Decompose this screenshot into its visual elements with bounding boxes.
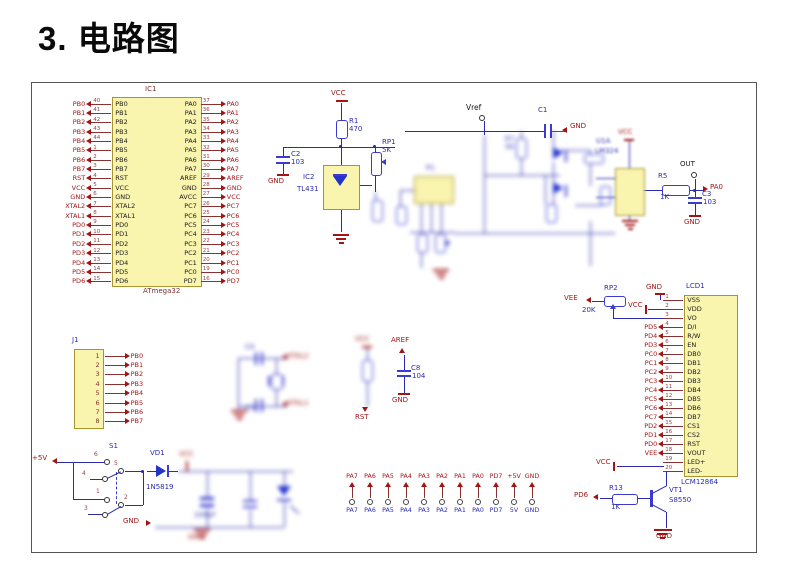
pin-number: 1 [665, 294, 669, 300]
pin-label: PA3 [418, 507, 430, 514]
ic1-pin-row: VCC 5 VCC GND 28 GND [58, 183, 254, 192]
pin-name: XTAL2 [111, 202, 156, 210]
pin-name: PA6 [156, 156, 201, 164]
vcc-label: VCC [596, 459, 611, 466]
ic1-pin-row: PD3 12 PD3 PC2 21 PC2 [58, 249, 254, 258]
net-label: PA6 [364, 473, 376, 482]
pin-line [105, 407, 125, 416]
net-label: PD2 [632, 422, 658, 430]
pin-name: PA7 [156, 165, 201, 173]
ground-symbol [625, 224, 635, 226]
pd6-net-label: PD6 [574, 492, 588, 499]
net-label: PA7 [226, 165, 254, 173]
wire [629, 141, 630, 168]
net-label: PD2 [58, 240, 86, 248]
pin-name: PC2 [156, 249, 201, 257]
pin-name: PB2 [111, 118, 156, 126]
pin-line [532, 487, 533, 498]
switch-pin-number: 5 [114, 461, 118, 467]
net-label: PD0 [632, 440, 658, 448]
pin-name: PC0 [156, 268, 201, 276]
pin-number: 35 [203, 117, 210, 123]
power-bar [624, 139, 634, 141]
pin-label: PD7 [490, 507, 503, 514]
pin-number: 24 [203, 219, 210, 225]
lcd-pin-row: 20 LED- [632, 466, 734, 475]
net-label: PB7 [58, 165, 86, 173]
ic1-pin-row: PD4 13 PD4 PC1 20 PC1 [58, 258, 254, 267]
j1-pin-row: 5 PB4 [76, 389, 156, 398]
pin-number: 11 [93, 238, 100, 244]
rp2-designator: RP2 [604, 285, 618, 292]
terminal [493, 499, 499, 505]
net-label: PD7 [226, 277, 254, 285]
terminal [475, 499, 481, 505]
pin-number: 8 [93, 210, 97, 216]
lcd-pin-row: PC1 8 DB1 [632, 358, 734, 367]
pin-name: PD3 [111, 249, 156, 257]
gnd-label: GND [570, 123, 586, 130]
net-label: PD3 [58, 249, 86, 257]
pin-number: 37 [203, 98, 210, 104]
ic1-pin-row: PD5 14 PD5 PC0 19 PC0 [58, 267, 254, 276]
net-label: PC6 [632, 404, 658, 412]
ic1-pin-row: PD6 15 PD6 PD7 16 PD7 [58, 277, 254, 286]
aref-net-label: AREF [391, 337, 409, 344]
pin-number: 10 [665, 375, 672, 381]
io-connector-column: PA5 PA5 [379, 473, 397, 514]
lcd-pin-row: PD0 17 RST [632, 439, 734, 448]
net-label: PB6 [58, 156, 86, 164]
page: 3. 电路图 P1 R7 5K C4 C5 XTAL2 XTAL1 VCC VC… [0, 0, 800, 579]
pin-name: XTAL1 [111, 212, 156, 220]
net-label: PB4 [58, 137, 86, 145]
net-label: PB2 [58, 118, 86, 126]
r13-value: 1K [611, 504, 620, 511]
ic2-part-label: TL431 [297, 186, 319, 193]
pin-label: PA2 [436, 507, 448, 514]
pin-name: PB1 [111, 109, 156, 117]
lcd-pin-row: PC5 12 DB5 [632, 394, 734, 403]
j1-pin-row: 6 PB5 [76, 398, 156, 407]
pin-number: 6 [93, 191, 97, 197]
terminal [511, 499, 517, 505]
pin-number: 18 [665, 447, 672, 453]
ic1-pin-row: PB5 1 PB5 PA5 32 PA5 [58, 146, 254, 155]
pin-number: 25 [203, 210, 210, 216]
pin-name: PB7 [111, 165, 156, 173]
ic1-pin-row: PD0 9 PD0 PC5 24 PC5 [58, 220, 254, 229]
net-label: PA3 [226, 128, 254, 136]
vcc-label: VCC [331, 90, 346, 97]
net-label: PC0 [632, 350, 658, 358]
switch-pin-number: 3 [84, 506, 88, 512]
net-label: PA4 [400, 473, 412, 482]
net-label: PD5 [632, 323, 658, 331]
pin-line [496, 487, 497, 498]
io-connector-column: PA1 PA1 [451, 473, 469, 514]
net-label: PA1 [226, 109, 254, 117]
pin-number: 22 [203, 238, 210, 244]
pin-number: 9 [665, 366, 669, 372]
pin-number: 41 [93, 107, 100, 113]
pin-label: PA5 [382, 507, 394, 514]
pin-number: 6 [76, 399, 105, 407]
terminal [367, 499, 373, 505]
pin-name: DB4 [683, 386, 734, 394]
pin-name: PD2 [111, 240, 156, 248]
ic1-pin-row: PD2 11 PD2 PC3 22 PC3 [58, 239, 254, 248]
c3-designator: C3 [702, 191, 711, 198]
net-label: PA3 [418, 473, 430, 482]
pin-name: LED- [683, 467, 734, 475]
pin-line [105, 417, 125, 426]
pin-number: 8 [665, 357, 669, 363]
lcd-pin-row: PD4 5 R/W [632, 331, 734, 340]
net-label: PB3 [130, 380, 156, 388]
pin-name: VSS [683, 296, 734, 304]
pin-number: 19 [203, 266, 210, 272]
opamp-vcc-label: VCC [618, 129, 633, 136]
opamp-part-label: LM324 [595, 148, 618, 155]
ic1-part-label: ATmega32 [143, 288, 180, 295]
pin-name: PA3 [156, 128, 201, 136]
pin-number: 4 [665, 321, 669, 327]
lcd-pin-row: PC2 9 DB2 [632, 367, 734, 376]
wire [596, 197, 615, 198]
ic1-pin-row: PB7 3 PB7 PA7 30 PA7 [58, 164, 254, 173]
terminal [403, 499, 409, 505]
c2-value: 103 [291, 159, 304, 166]
vt1-part-label: S8550 [669, 497, 691, 504]
lcd-pin-row: PC0 7 DB0 [632, 349, 734, 358]
pin-label: GND [525, 507, 539, 514]
pin-line: 15 [91, 277, 111, 286]
pin-name: VDD [683, 305, 734, 313]
net-label: PA4 [226, 137, 254, 145]
net-label: GND [525, 473, 539, 482]
net-label: PC5 [632, 395, 658, 403]
vd1-designator: VD1 [150, 450, 165, 457]
pin-number: 34 [203, 126, 210, 132]
pin-name: PB5 [111, 146, 156, 154]
pin-line [460, 487, 461, 498]
pin-label: PA7 [346, 507, 358, 514]
pin-line: 20 [663, 466, 683, 475]
ic1-designator: IC1 [145, 86, 156, 93]
lcd-pin-row: PD2 15 CS1 [632, 421, 734, 430]
s1-designator: S1 [109, 443, 118, 450]
pin-label: PA1 [454, 507, 466, 514]
rp1-value: 5K [382, 147, 391, 154]
net-label: PC5 [226, 221, 254, 229]
net-label: PC6 [226, 212, 254, 220]
pin-number: 42 [93, 117, 100, 123]
net-label: PB7 [130, 417, 156, 425]
net-label: PB3 [58, 128, 86, 136]
net-label: GND [226, 184, 254, 192]
lcd-pin-row: PC3 10 DB3 [632, 376, 734, 385]
component-body [615, 168, 645, 216]
pin-name: PB6 [111, 156, 156, 164]
pin-name: AREF [156, 174, 201, 182]
pin-number: 14 [665, 411, 672, 417]
pin-name: R/W [683, 332, 734, 340]
pin-name: PA4 [156, 137, 201, 145]
ic2-designator: IC2 [303, 174, 314, 181]
lcd-pin-row: 2 VDD [632, 304, 734, 313]
r1-value: 470 [349, 126, 362, 133]
pin-number: 10 [93, 229, 100, 235]
switch-pin-number: 1 [96, 489, 100, 495]
j1-pin-row: 4 PB3 [76, 379, 156, 388]
pin-number: 11 [665, 384, 672, 390]
ic1-pin-row: PB2 42 PB2 PA2 35 PA2 [58, 118, 254, 127]
net-label: XTAL2 [58, 202, 86, 210]
io-connector-column: PA4 PA4 [397, 473, 415, 514]
gnd-net-label: GND [123, 518, 139, 525]
pin-name: PD0 [111, 221, 156, 229]
terminal [529, 499, 535, 505]
pin-name: PA1 [156, 109, 201, 117]
pin-number: 15 [665, 420, 672, 426]
pin-line [478, 487, 479, 498]
net-label: PB0 [130, 352, 156, 360]
terminal [349, 499, 355, 505]
pin-line: 16 [201, 277, 221, 286]
net-label: PA1 [454, 473, 466, 482]
pin-name: AVCC [156, 193, 201, 201]
pin-name: PB0 [111, 100, 156, 108]
pin-name: PC1 [156, 259, 201, 267]
out-label: OUT [680, 161, 695, 168]
pin-number: 16 [665, 429, 672, 435]
net-label: PB4 [130, 389, 156, 397]
ic1-pin-row: XTAL1 8 XTAL1 PC6 25 PC6 [58, 211, 254, 220]
j1-pin-rows: 1 PB0 2 PB1 3 PB2 4 PB3 5 PB4 6 [76, 351, 156, 426]
io-connector-column: PA3 PA3 [415, 473, 433, 514]
net-label: PB5 [58, 146, 86, 154]
pin-name: VOUT [683, 449, 734, 457]
net-label: PB2 [130, 370, 156, 378]
j1-designator: J1 [72, 337, 79, 344]
switch-pin-number: 2 [124, 495, 128, 501]
net-label: PD5 [58, 268, 86, 276]
pin-label: PA0 [472, 507, 484, 514]
vref-label: Vref [466, 104, 481, 112]
pin-line [388, 487, 389, 498]
pin-number: 20 [203, 257, 210, 263]
pin-number: 7 [93, 201, 97, 207]
pin-name: VO [683, 314, 734, 322]
pin-number: 12 [665, 393, 672, 399]
ic1-pin-row: PB4 44 PB4 PA4 33 PA4 [58, 136, 254, 145]
lcd-pin-rows: 1 VSS 2 VDD 3 VO PD5 4 D/I PD4 5 R/W PD3… [632, 295, 734, 475]
pin-number: 28 [203, 182, 210, 188]
pin-number: 7 [665, 348, 669, 354]
rst-net-label: RST [355, 414, 369, 421]
net-label: PC7 [632, 413, 658, 421]
pin-name: DB7 [683, 413, 734, 421]
lcd-pin-row: 1 VSS [632, 295, 734, 304]
net-label: PA5 [382, 473, 394, 482]
switch-pin-number: 4 [82, 471, 86, 477]
gnd-label: GND [656, 533, 672, 540]
lcd-pin-row: VEE 18 VOUT [632, 448, 734, 457]
pin-number: 32 [203, 145, 210, 151]
pin-label: PA4 [400, 507, 412, 514]
r5-designator: R5 [658, 173, 667, 180]
net-label: XTAL1 [58, 212, 86, 220]
pin-name: PA2 [156, 118, 201, 126]
pin-number: 3 [76, 370, 105, 378]
lcd-pin-row: PD5 4 D/I [632, 322, 734, 331]
net-label: PC2 [632, 368, 658, 376]
pin-number: 17 [665, 438, 672, 444]
net-label: PA5 [226, 146, 254, 154]
pin-name: PD4 [111, 259, 156, 267]
io-connector-row: PA7 PA7 PA6 PA6 PA5 PA5 PA4 PA4 PA3 [343, 473, 541, 514]
gnd-label: GND [392, 397, 408, 404]
pin-number: 19 [665, 456, 672, 462]
c8-designator: C8 [411, 365, 420, 372]
pin-number: 13 [665, 402, 672, 408]
io-connector-column: PA7 PA7 [343, 473, 361, 514]
terminal [439, 499, 445, 505]
lcd-pin-row: PC6 13 DB6 [632, 403, 734, 412]
pin-name: PB3 [111, 128, 156, 136]
net-label: VEE [632, 449, 658, 457]
switch-pin-number: 6 [94, 452, 98, 458]
io-connector-column: PD7 PD7 [487, 473, 505, 514]
pin-name: PA5 [156, 146, 201, 154]
lcd-designator: LCD1 [686, 283, 705, 290]
net-label: PD0 [58, 221, 86, 229]
net-label: PC1 [226, 259, 254, 267]
io-connector-column: GND GND [523, 473, 541, 514]
pa0-net-label: PA0 [710, 184, 723, 191]
pin-number: 1 [93, 145, 97, 151]
lcd-pin-row: PD1 16 CS2 [632, 430, 734, 439]
pin-number: 21 [203, 248, 210, 254]
net-label: PD4 [632, 332, 658, 340]
pin-name: PD7 [156, 277, 201, 285]
net-label: PB1 [130, 361, 156, 369]
rp1-designator: RP1 [382, 139, 396, 146]
j1-pin-row: 7 PB6 [76, 407, 156, 416]
pin-name: PA0 [156, 100, 201, 108]
pin-number: 7 [76, 408, 105, 416]
pin-line [105, 360, 125, 369]
net-label: PB0 [58, 100, 86, 108]
ic1-pin-row: PB0 40 PB0 PA0 37 PA0 [58, 99, 254, 108]
pin-number: 5 [76, 389, 105, 397]
r5-value: 1K [660, 194, 669, 201]
net-label: PC3 [226, 240, 254, 248]
pin-name: EN [683, 341, 734, 349]
vcc-label: VCC [628, 302, 643, 309]
pin-name: PC6 [156, 212, 201, 220]
pin-number: 40 [93, 98, 100, 104]
pin-name: PC5 [156, 221, 201, 229]
pin-name: RST [111, 174, 156, 182]
pin-number: 5 [93, 182, 97, 188]
pin-line [514, 487, 515, 498]
ic1-pin-row: XTAL2 7 XTAL2 PC7 26 PC7 [58, 202, 254, 211]
plus5v-net-label: +5V [32, 455, 47, 462]
ground-symbol [628, 228, 633, 230]
lcd-pin-row: PC4 11 DB4 [632, 385, 734, 394]
pin-number: 14 [93, 266, 100, 272]
r1-designator: R1 [349, 118, 358, 125]
net-label: PD1 [58, 230, 86, 238]
pin-number: 30 [203, 163, 210, 169]
pin-number: 43 [93, 126, 100, 132]
pin-label: 5V [510, 507, 518, 514]
pin-number: 36 [203, 107, 210, 113]
pin-name: PD6 [111, 277, 156, 285]
pin-name: DB6 [683, 404, 734, 412]
ground-symbol [622, 220, 638, 222]
c2-designator: C2 [291, 151, 300, 158]
pin-name: PC7 [156, 202, 201, 210]
pin-number: 15 [93, 276, 100, 282]
net-label: PB5 [130, 399, 156, 407]
net-label: PB1 [58, 109, 86, 117]
ic1-pin-row: GND 6 GND AVCC 27 VCC [58, 192, 254, 201]
j1-pin-row: 8 PB7 [76, 417, 156, 426]
net-label: PC4 [226, 230, 254, 238]
net-label: PD7 [490, 473, 503, 482]
terminal [457, 499, 463, 505]
io-connector-column: PA0 PA0 [469, 473, 487, 514]
net-label: PA2 [436, 473, 448, 482]
ic1-pin-rows: PB0 40 PB0 PA0 37 PA0 PB1 41 PB1 PA1 36 … [58, 99, 254, 286]
pin-name: PD5 [111, 268, 156, 276]
net-label: PC4 [632, 386, 658, 394]
net-label: PC7 [226, 202, 254, 210]
pin-number: 3 [93, 163, 97, 169]
net-label: PB6 [130, 408, 156, 416]
net-label: PA6 [226, 156, 254, 164]
pin-name: CS2 [683, 431, 734, 439]
pin-number: 4 [76, 380, 105, 388]
pin-name: DB0 [683, 350, 734, 358]
c3-value: 103 [703, 199, 716, 206]
vt1-designator: VT1 [669, 487, 683, 494]
pin-number: 2 [93, 154, 97, 160]
j1-pin-row: 3 PB2 [76, 370, 156, 379]
gnd-label: GND [268, 178, 284, 185]
pin-name: GND [156, 184, 201, 192]
vee-net-label: VEE [564, 295, 578, 302]
net-label: GND [58, 193, 86, 201]
pin-number: 44 [93, 135, 100, 141]
pin-name: D/I [683, 323, 734, 331]
pin-name: PB4 [111, 137, 156, 145]
ic1-pin-row: PD1 10 PD1 PC4 23 PC4 [58, 230, 254, 239]
pin-line [105, 351, 125, 360]
pin-number: 2 [76, 361, 105, 369]
pin-name: VCC [111, 184, 156, 192]
pin-line [442, 487, 443, 498]
lcd-pin-row: 3 VO [632, 313, 734, 322]
ic1-pin-row: PB1 41 PB1 PA1 36 PA1 [58, 108, 254, 117]
pin-number: 8 [76, 417, 105, 425]
gnd-label: GND [684, 219, 700, 226]
c1-designator: C1 [538, 107, 547, 114]
net-label: PC2 [226, 249, 254, 257]
